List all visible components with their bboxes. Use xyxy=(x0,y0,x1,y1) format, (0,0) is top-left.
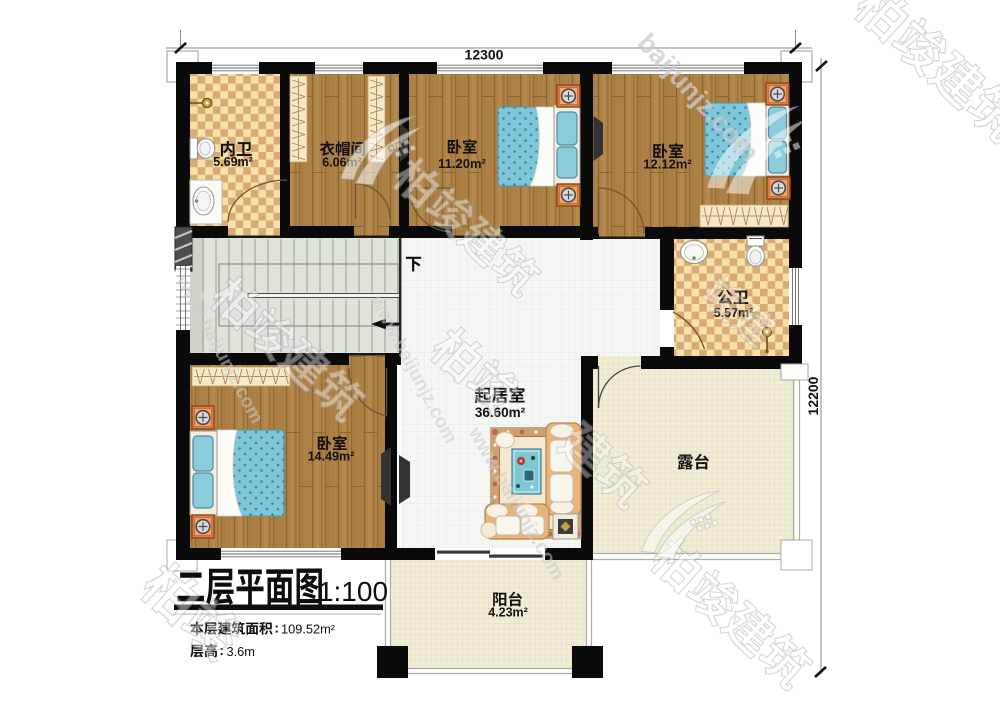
svg-text::: : xyxy=(275,621,280,636)
svg-text:36.60m²: 36.60m² xyxy=(475,405,526,420)
svg-text:109.52m²: 109.52m² xyxy=(281,622,336,637)
svg-text:12200: 12200 xyxy=(805,376,821,415)
svg-text:1:100: 1:100 xyxy=(318,576,388,607)
svg-text:14.49m²: 14.49m² xyxy=(308,450,355,464)
svg-text:5.69m²: 5.69m² xyxy=(213,155,253,169)
svg-text:11.20m²: 11.20m² xyxy=(438,156,486,171)
svg-text:4.23m²: 4.23m² xyxy=(488,606,528,620)
svg-text:3.6m: 3.6m xyxy=(227,644,255,659)
svg-text:12.12m²: 12.12m² xyxy=(643,157,692,172)
svg-text:12300: 12300 xyxy=(465,47,504,63)
